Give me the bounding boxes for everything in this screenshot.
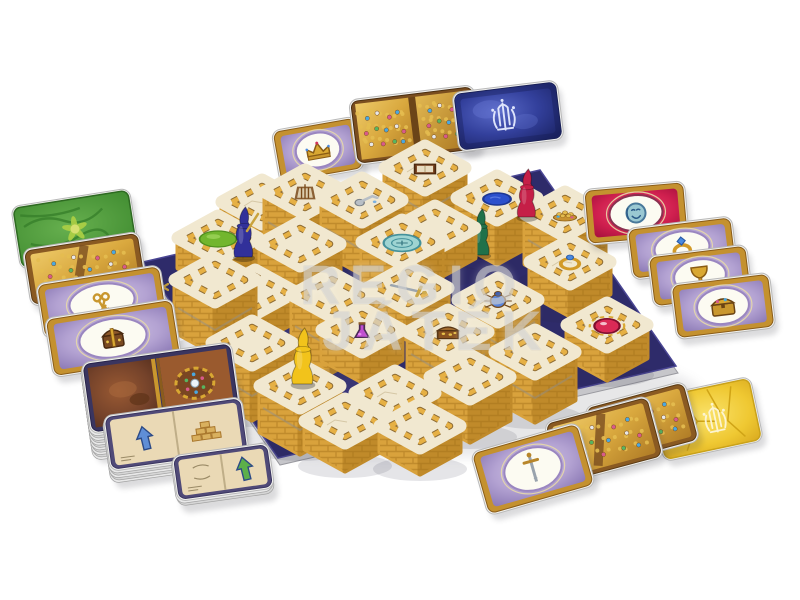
- treasure-card-chest-gold: [670, 272, 780, 347]
- labyrinth-3d-product-photo: REGIO JÁTÉK: [0, 0, 800, 600]
- treasure-chest-icon: [438, 327, 459, 339]
- moon-face-icon: [626, 203, 647, 224]
- book-icon: [415, 164, 436, 174]
- green-start-pad-icon: [200, 231, 237, 247]
- board-scene: [0, 0, 800, 600]
- red-gem-icon: [590, 317, 625, 335]
- blue-card-back: [452, 79, 568, 159]
- blue-pond-icon: [483, 193, 511, 205]
- maze-tile: [373, 404, 467, 481]
- teal-rune-icon: [384, 235, 421, 252]
